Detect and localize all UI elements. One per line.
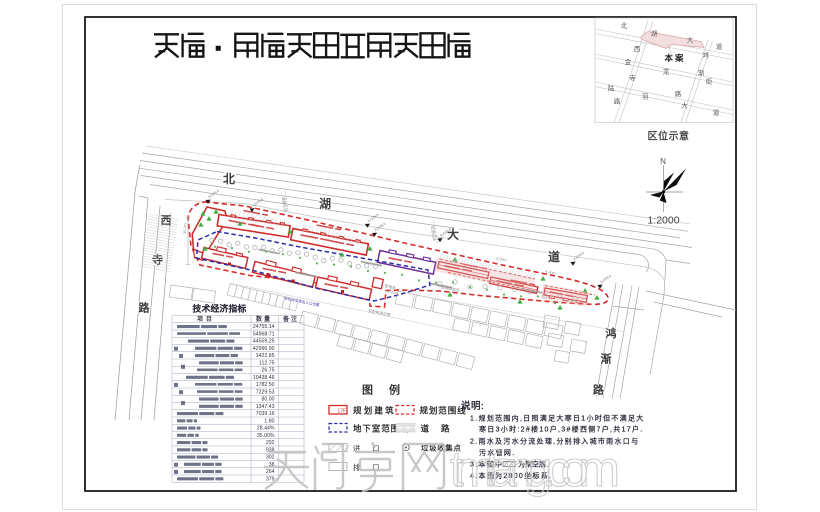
svg-text:1.规划范围内,日照满足大寒日1小时但不满足大: 1.规划范围内,日照满足大寒日1小时但不满足大	[470, 414, 645, 423]
svg-text:1347.43: 1347.43	[256, 404, 275, 410]
svg-text:26.75: 26.75	[262, 368, 275, 374]
svg-text:技术经济指标: 技术经济指标	[193, 303, 247, 314]
svg-text:42996.90: 42996.90	[253, 346, 275, 352]
svg-text:17F: 17F	[338, 408, 347, 414]
svg-text:1422.85: 1422.85	[256, 353, 275, 359]
svg-text:路: 路	[593, 384, 604, 397]
svg-text:备注: 备注	[283, 315, 299, 323]
svg-text:鸿: 鸿	[702, 50, 709, 59]
svg-text:1782.50: 1782.50	[256, 382, 275, 388]
svg-text:说明:: 说明:	[461, 400, 484, 412]
svg-text:图: 图	[362, 384, 373, 397]
svg-text:30.0m: 30.0m	[183, 223, 187, 234]
svg-text:路: 路	[614, 96, 621, 105]
svg-text:7229.53: 7229.53	[256, 389, 275, 395]
svg-text:北: 北	[223, 172, 235, 186]
svg-text:渐: 渐	[698, 68, 705, 77]
svg-text:路: 路	[441, 424, 450, 434]
svg-text:羽: 羽	[642, 92, 649, 100]
svg-text:本案: 本案	[664, 53, 685, 63]
svg-text:鸿: 鸿	[606, 326, 617, 340]
svg-text:寒日3小时:2#楼10户,3#楼西侧7户,共17户.: 寒日3小时:2#楼10户,3#楼西侧7户,共17户.	[479, 425, 644, 434]
svg-text:数量: 数量	[256, 315, 272, 323]
svg-text:10438.46: 10438.46	[253, 375, 275, 381]
svg-text:302: 302	[266, 455, 275, 461]
svg-text:金: 金	[625, 57, 632, 66]
svg-text:龙: 龙	[663, 66, 670, 75]
svg-text:tmfang.com: tmfang.com	[450, 441, 620, 497]
svg-text:街: 街	[706, 76, 713, 85]
svg-text:35.00%: 35.00%	[257, 433, 275, 439]
svg-text:北: 北	[621, 22, 628, 30]
svg-text:7039.16: 7039.16	[256, 411, 275, 417]
svg-text:渐: 渐	[601, 352, 612, 366]
svg-text:路: 路	[139, 302, 150, 315]
svg-text:264: 264	[266, 469, 275, 475]
svg-text:道: 道	[713, 107, 720, 116]
svg-text:80.00: 80.00	[262, 397, 275, 403]
svg-text:1.80: 1.80	[264, 418, 274, 424]
svg-text:28.44%: 28.44%	[257, 426, 275, 432]
svg-text:道: 道	[421, 424, 430, 434]
svg-text:大: 大	[687, 35, 694, 44]
svg-text:陆: 陆	[608, 83, 615, 92]
svg-text:西: 西	[634, 45, 641, 53]
svg-text:54968.71: 54968.71	[253, 331, 275, 337]
svg-text:道: 道	[716, 41, 723, 50]
svg-text:湖: 湖	[651, 28, 658, 37]
svg-text:大: 大	[681, 100, 688, 109]
svg-text:44559.25: 44559.25	[253, 339, 275, 345]
svg-text:规划建筑: 规划建筑	[353, 406, 396, 416]
svg-text:例: 例	[389, 383, 400, 397]
svg-text:24755.14: 24755.14	[253, 324, 275, 330]
svg-text:寺: 寺	[629, 74, 636, 82]
svg-text:112.75: 112.75	[259, 360, 275, 366]
svg-text:湖: 湖	[319, 196, 331, 211]
svg-text:道: 道	[548, 250, 560, 264]
svg-text:区位示意: 区位示意	[648, 130, 690, 143]
svg-text:路: 路	[675, 89, 682, 98]
svg-text:项目: 项目	[197, 316, 215, 323]
svg-text:292: 292	[266, 440, 275, 446]
svg-text:规划范围线: 规划范围线	[420, 406, 467, 416]
svg-text:N: N	[660, 157, 666, 166]
